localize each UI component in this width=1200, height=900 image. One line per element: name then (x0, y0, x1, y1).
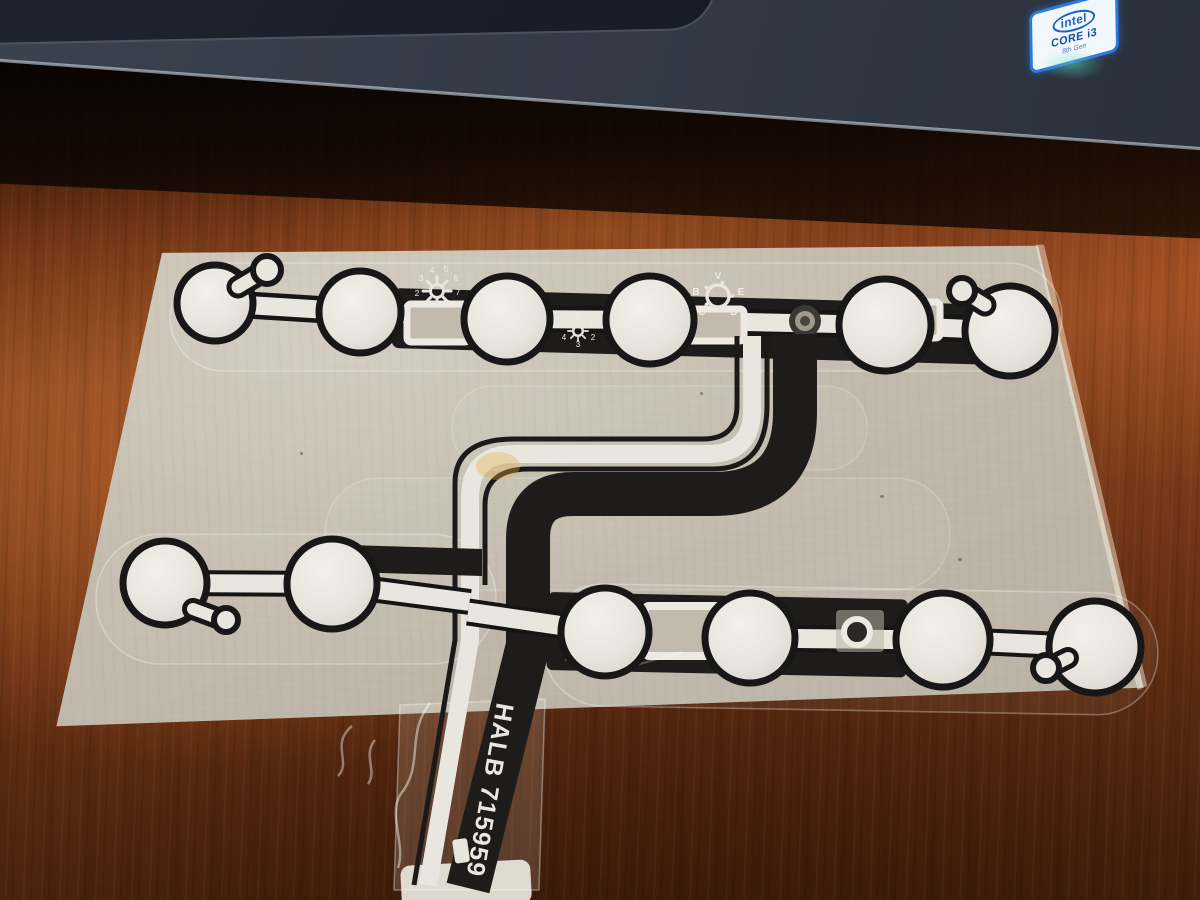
selector-letter: B (692, 287, 699, 298)
membrane-flex-circuit: 2 3 4 5 6 7 8 0 1 2 3 4 5 V B (0, 0, 1200, 900)
dial-number: 3 (419, 273, 424, 283)
dial-number: 4 (430, 265, 435, 275)
button-pad (287, 539, 377, 629)
dial-number: 8 (446, 298, 451, 308)
film-crumple-highlight (338, 726, 375, 784)
button-pad (464, 276, 550, 362)
selector-letter: V (715, 271, 722, 282)
dial-number: 3 (576, 340, 581, 349)
film-glare (476, 452, 520, 480)
dial-number: 5 (561, 320, 566, 329)
button-pad (319, 271, 401, 353)
ring-target-icon (844, 619, 870, 645)
selector-letter: C (698, 307, 705, 318)
button-pad (561, 588, 649, 676)
dial-number: 1 (589, 320, 594, 329)
button-pad (705, 593, 795, 683)
dial-number: 6 (454, 273, 459, 283)
dial-number: 0 (576, 313, 581, 322)
dial-number: 5 (444, 264, 449, 274)
dial-number: 4 (562, 333, 567, 342)
selector-letter: D (730, 307, 737, 318)
ring-target-icon (789, 305, 821, 337)
contact-window (407, 304, 469, 342)
dial-number: 2 (591, 333, 596, 342)
alignment-stub (238, 256, 281, 287)
dial-number: 7 (456, 287, 461, 297)
dial-number: 2 (415, 288, 420, 298)
button-pad (1049, 601, 1141, 693)
photo-scene: intel CORE i3 8th Gen (0, 0, 1200, 900)
button-pad (606, 276, 694, 364)
button-pad (839, 279, 931, 371)
button-pad (896, 593, 990, 687)
selector-letter: E (738, 287, 745, 298)
